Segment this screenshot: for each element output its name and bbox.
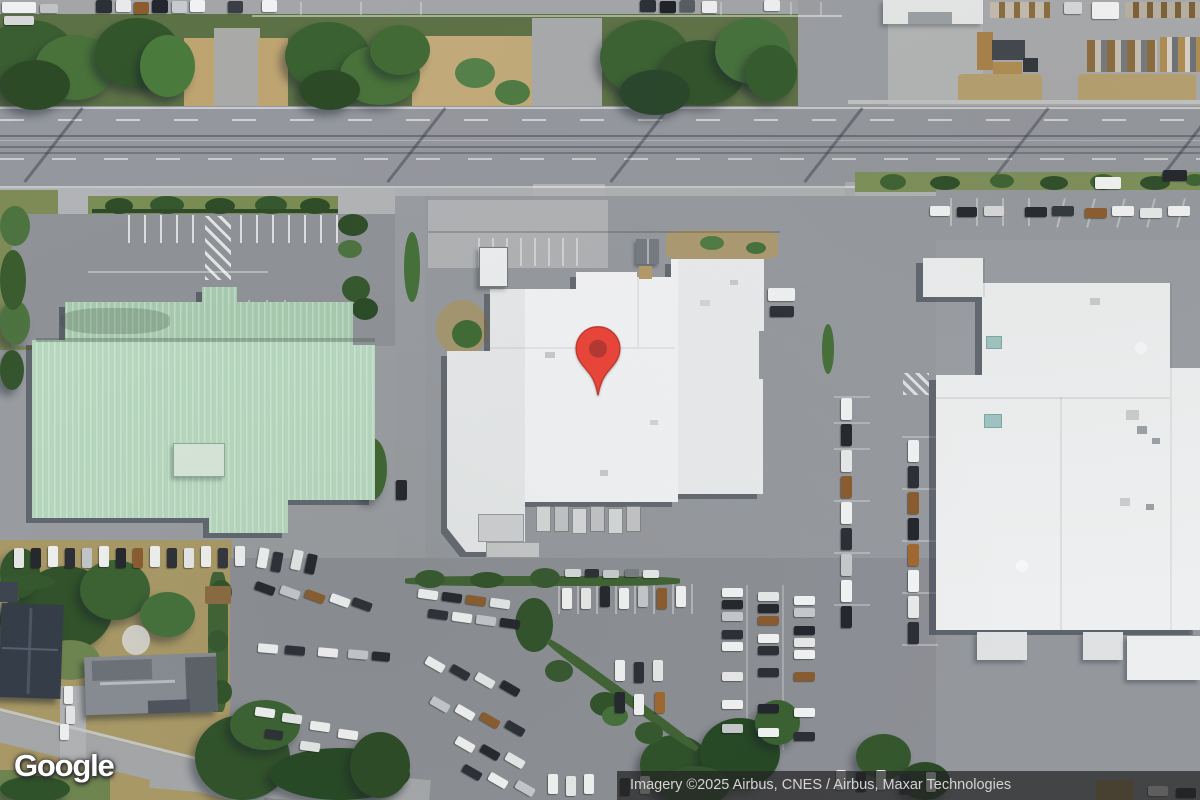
vert-row-tick xyxy=(596,584,598,614)
pallet-cluster xyxy=(486,542,540,558)
trailer xyxy=(2,2,36,13)
house-porch xyxy=(148,699,190,713)
stall-tick xyxy=(360,2,362,15)
car xyxy=(841,450,852,472)
attribution-bar: Imagery ©2025 Airbus, CNES / Airbus, Max… xyxy=(617,771,1200,800)
verge-bush xyxy=(1040,176,1068,190)
car xyxy=(348,649,369,660)
car xyxy=(722,700,743,709)
green-roof-stain xyxy=(60,308,170,334)
tree xyxy=(140,35,195,97)
trailer xyxy=(40,4,58,13)
car xyxy=(841,580,852,602)
vert-row-tick xyxy=(634,584,636,614)
right-roof-seam xyxy=(936,397,1170,399)
car xyxy=(262,0,277,12)
pallet-rack xyxy=(1087,40,1157,72)
house-wing-dark xyxy=(185,656,218,712)
tree xyxy=(745,45,797,100)
center-roof-unit xyxy=(600,470,608,476)
car xyxy=(99,546,109,567)
loading-unit xyxy=(590,506,605,532)
car xyxy=(908,622,919,644)
location-pin-icon[interactable] xyxy=(573,325,623,399)
car xyxy=(318,647,339,658)
car xyxy=(615,692,625,713)
loading-unit xyxy=(536,506,551,532)
car xyxy=(634,662,644,683)
lot-hedge-bush xyxy=(470,572,504,588)
car xyxy=(643,570,659,578)
car xyxy=(566,776,576,796)
car xyxy=(372,651,391,662)
median-hedge xyxy=(92,209,338,213)
car xyxy=(764,0,780,11)
car xyxy=(60,724,69,740)
car xyxy=(722,612,743,621)
compound-north-apron xyxy=(428,200,608,268)
hatch-marks xyxy=(903,373,929,395)
car xyxy=(722,672,743,681)
roof-unit xyxy=(1152,438,1160,444)
car xyxy=(600,586,610,607)
car xyxy=(167,548,177,568)
vert-row-tick xyxy=(672,584,674,614)
car xyxy=(565,569,581,577)
car xyxy=(235,546,245,566)
car xyxy=(201,546,211,567)
gray-shed-ridge xyxy=(647,239,649,264)
car xyxy=(908,466,919,488)
car xyxy=(548,774,558,794)
compound-tuft xyxy=(700,236,724,250)
roof-tank xyxy=(1016,560,1028,572)
island-bush xyxy=(338,214,368,236)
car xyxy=(1112,206,1134,216)
car xyxy=(581,588,591,609)
vert-row-tick xyxy=(577,584,579,614)
dock-apron xyxy=(977,632,1027,660)
car xyxy=(758,668,779,677)
car xyxy=(1025,207,1047,217)
car xyxy=(722,600,743,609)
stall-line xyxy=(176,215,178,243)
car xyxy=(285,645,306,656)
car xyxy=(908,570,919,592)
car xyxy=(64,686,73,704)
stall-line xyxy=(272,215,274,243)
car xyxy=(908,518,919,540)
car xyxy=(152,0,168,13)
car xyxy=(65,548,75,568)
lane-dashes-1 xyxy=(0,119,1200,121)
stall-line xyxy=(320,215,322,243)
stall-line xyxy=(336,215,338,243)
loading-unit xyxy=(554,506,569,532)
right-roof-seam xyxy=(1170,283,1172,630)
stall-tick xyxy=(420,2,422,15)
car xyxy=(134,2,149,14)
center-roof-unit xyxy=(545,352,555,358)
car xyxy=(657,588,667,609)
east-stall xyxy=(834,396,870,398)
verge-bush xyxy=(880,174,906,190)
stall-line xyxy=(192,215,194,243)
roof-unit xyxy=(1126,410,1139,420)
tan-gap-2 xyxy=(258,38,288,116)
pin-inner-dot xyxy=(589,340,607,358)
truck xyxy=(1064,2,1082,14)
center-roof-unit xyxy=(650,420,658,425)
van-compound xyxy=(768,288,795,301)
skylight xyxy=(984,414,1002,428)
car xyxy=(758,704,779,713)
car xyxy=(584,774,594,794)
car xyxy=(702,1,717,13)
car xyxy=(625,569,639,577)
car xyxy=(653,660,663,681)
pallet-stack xyxy=(993,62,1022,74)
green-roof-ridge xyxy=(36,338,375,342)
car xyxy=(841,476,852,498)
car xyxy=(722,630,743,639)
car xyxy=(1085,208,1107,218)
pallet-cluster xyxy=(478,514,524,542)
compound-bush xyxy=(452,320,482,348)
car xyxy=(31,548,41,568)
car xyxy=(585,569,599,577)
car xyxy=(794,638,815,647)
car xyxy=(603,570,619,578)
car xyxy=(908,440,919,462)
car-west-road xyxy=(396,480,407,500)
stall-tick xyxy=(820,2,822,15)
north-lot-stall xyxy=(950,198,952,226)
tree xyxy=(350,732,410,798)
car xyxy=(184,548,194,568)
lot-hedge-bush xyxy=(530,568,560,588)
trailer xyxy=(4,16,34,25)
lot-edge-bush xyxy=(0,250,26,310)
stall-line xyxy=(128,215,130,243)
roof-unit xyxy=(1146,504,1154,510)
roof-tank xyxy=(1135,342,1147,354)
car xyxy=(190,0,205,12)
car xyxy=(984,206,1004,216)
car xyxy=(794,708,815,717)
tram-line-4 xyxy=(0,152,1200,154)
car xyxy=(758,728,779,737)
tree xyxy=(300,70,360,110)
car xyxy=(615,660,625,681)
diag-bush xyxy=(545,660,573,682)
car xyxy=(841,606,852,628)
green-roof-vent xyxy=(173,443,225,477)
car-compound xyxy=(770,306,794,317)
verge-bush xyxy=(990,174,1014,188)
vert-row-tick xyxy=(615,584,617,614)
tree xyxy=(370,25,430,75)
island-bush xyxy=(338,240,362,258)
bush xyxy=(495,80,530,105)
loading-unit xyxy=(626,506,641,532)
crate-row xyxy=(990,2,1050,18)
tree xyxy=(0,60,70,110)
car xyxy=(96,0,112,13)
east-stall xyxy=(834,422,870,424)
stall-tick xyxy=(720,2,722,15)
car-on-road xyxy=(1163,170,1187,181)
car xyxy=(116,548,126,568)
attribution-text: Imagery ©2025 Airbus, CNES / Airbus, Max… xyxy=(630,777,1011,793)
vert-row-tick xyxy=(558,584,560,614)
stall-line xyxy=(160,215,162,243)
gravel-drive xyxy=(214,28,260,116)
car xyxy=(66,706,75,724)
car xyxy=(660,1,676,13)
lot-hedge-bush xyxy=(415,570,445,588)
bin xyxy=(1023,58,1038,72)
car xyxy=(841,554,852,576)
car xyxy=(794,608,815,617)
roof-unit xyxy=(1120,498,1130,506)
house-annex xyxy=(0,582,18,602)
car xyxy=(1168,206,1190,216)
car xyxy=(619,588,629,609)
stall-line xyxy=(288,215,290,243)
car xyxy=(172,1,187,13)
west-road-hedge xyxy=(404,232,420,302)
compound-stall xyxy=(548,238,550,266)
car xyxy=(841,502,852,524)
debris-pile xyxy=(122,625,150,655)
compound-fence xyxy=(428,231,780,233)
car xyxy=(133,548,143,568)
car xyxy=(758,634,779,643)
car xyxy=(758,616,779,625)
tree xyxy=(620,70,690,115)
car xyxy=(957,207,977,217)
car xyxy=(638,586,648,607)
car xyxy=(794,672,815,681)
car xyxy=(758,604,779,613)
right-roof-seam xyxy=(1060,397,1062,630)
car xyxy=(634,694,644,715)
car xyxy=(841,528,852,550)
pallet-stack xyxy=(977,32,993,70)
car xyxy=(908,544,919,566)
loading-unit xyxy=(608,508,623,534)
diag-bush xyxy=(635,722,663,744)
right-roof-seam xyxy=(983,258,985,297)
google-logo: Google xyxy=(14,748,114,784)
road-edge-top xyxy=(0,107,1200,109)
car xyxy=(930,206,950,216)
curb-line xyxy=(88,271,268,273)
car xyxy=(794,650,815,659)
garden-box xyxy=(205,586,231,604)
car xyxy=(676,586,686,607)
white-shed xyxy=(479,247,508,287)
center-roof-unit xyxy=(700,300,710,306)
satellite-map[interactable]: Google Imagery ©2025 Airbus, CNES / Airb… xyxy=(0,0,1200,800)
center-roof-unit xyxy=(730,280,738,285)
car xyxy=(1140,208,1162,218)
tree xyxy=(0,350,24,390)
car xyxy=(680,0,695,12)
compound-east-hedge xyxy=(822,324,834,374)
stall-line xyxy=(240,215,242,243)
car xyxy=(908,492,919,514)
lot-edge-bush xyxy=(0,206,30,246)
top-strip-line xyxy=(252,15,842,17)
crate-row xyxy=(1125,2,1200,18)
car xyxy=(258,643,279,654)
yard-building-gable xyxy=(908,12,952,24)
roof-unit xyxy=(1137,426,1147,434)
pallet-rack xyxy=(1160,37,1200,72)
car xyxy=(116,0,131,12)
car xyxy=(82,548,92,568)
car xyxy=(794,626,815,635)
compound-tuft xyxy=(746,242,766,254)
stall-tick xyxy=(790,2,792,15)
roof-unit xyxy=(1090,298,1100,305)
car xyxy=(794,596,815,605)
tram-line-1 xyxy=(0,135,1200,137)
east-stall xyxy=(902,644,938,646)
car xyxy=(758,592,779,601)
road-edge-bottom xyxy=(0,186,855,188)
vert-row-tick xyxy=(691,584,693,614)
car xyxy=(722,724,743,733)
car xyxy=(758,646,779,655)
compound-stall xyxy=(520,238,522,266)
car xyxy=(841,398,852,420)
verge-bush xyxy=(930,176,960,190)
car xyxy=(655,692,665,713)
east-stall xyxy=(834,552,870,554)
car xyxy=(562,588,572,609)
dock-apron xyxy=(1127,636,1200,680)
car xyxy=(640,0,656,12)
van-on-road xyxy=(1095,177,1121,189)
pin-body xyxy=(576,327,620,395)
house-hip-shade xyxy=(92,659,153,681)
compound-stall xyxy=(534,238,536,266)
dumpster xyxy=(992,40,1025,60)
stall-line xyxy=(256,215,258,243)
stall-tick xyxy=(300,2,302,15)
east-stall xyxy=(834,500,870,502)
bush xyxy=(455,58,495,88)
car xyxy=(48,546,58,567)
stall-line xyxy=(144,215,146,243)
car xyxy=(218,548,228,568)
verge-bush xyxy=(1185,174,1200,186)
center-driveway-north xyxy=(532,18,602,116)
skylight xyxy=(986,336,1002,349)
truck xyxy=(1092,2,1119,19)
stall-line xyxy=(304,215,306,243)
car xyxy=(722,588,743,597)
car xyxy=(722,642,743,651)
car xyxy=(841,424,852,446)
north-sidewalk xyxy=(848,100,1200,104)
car xyxy=(908,596,919,618)
car xyxy=(228,1,243,13)
east-stall xyxy=(834,448,870,450)
car xyxy=(1052,206,1074,216)
island-bush xyxy=(352,298,378,320)
yard-bush xyxy=(208,630,228,652)
compound-stall xyxy=(576,238,578,266)
center-roof-seam xyxy=(637,277,639,347)
compound-stall xyxy=(562,238,564,266)
car xyxy=(150,546,160,567)
east-stall xyxy=(834,604,870,606)
tree xyxy=(140,592,195,637)
dock-apron xyxy=(1083,632,1123,660)
lane-dashes-2 xyxy=(0,158,1200,160)
vert-row-tick xyxy=(653,584,655,614)
car xyxy=(14,548,24,568)
tan-shed xyxy=(639,266,652,279)
loading-unit xyxy=(572,508,587,534)
car xyxy=(794,732,815,741)
